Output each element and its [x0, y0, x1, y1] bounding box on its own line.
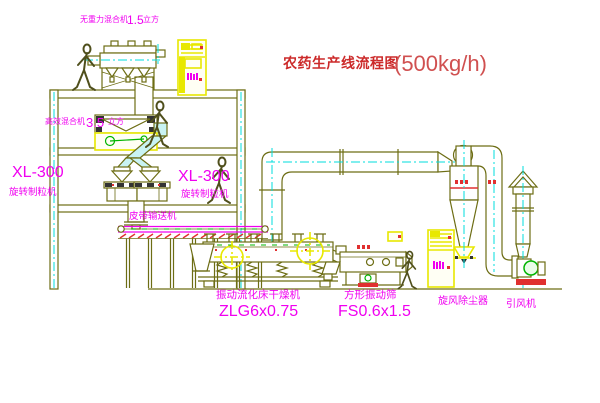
label-cyclone: 旋风除尘器 [438, 294, 488, 307]
label-gravity-free-mixer-unit: 立方 [143, 14, 159, 24]
dryer-foot [204, 281, 214, 287]
cabinet-text-mark [436, 262, 438, 269]
granulator-body-right [137, 188, 167, 201]
detail-dot [245, 249, 247, 251]
funnel-stem [126, 77, 130, 82]
fan-base [516, 279, 546, 285]
cabinet-text-mark [190, 73, 192, 80]
detail-dot [275, 249, 277, 251]
control-cabinet-top [178, 40, 206, 95]
flange-block [105, 183, 112, 187]
label-high-efficiency-mixer: 高效混合机 [45, 116, 85, 126]
flange-block [135, 183, 142, 187]
vent-cap [144, 41, 151, 46]
indicator-light [448, 236, 451, 239]
discharge-funnel [106, 68, 118, 77]
diagram-drawing: 农药生产线流程图 (500kg/h) 无重力混合机 1.5 立方 高效混合机 3… [0, 0, 600, 403]
dryer-foot [320, 281, 330, 287]
dimension-mark [488, 180, 491, 184]
label-high-efficiency-mixer-unit: 立方 [108, 116, 124, 126]
screen-discharge-spout [322, 262, 340, 274]
label-gravity-free-mixer: 无重力混合机 [80, 14, 128, 24]
granulator-body-left [107, 188, 137, 201]
label-screen-model: FS0.6x1.5 [338, 303, 411, 320]
diagram-title-capacity: (500kg/h) [394, 51, 487, 76]
detail-dot [112, 184, 114, 186]
label-screen-name: 方形振动筛 [344, 288, 397, 301]
cabinet-text-mark [439, 261, 441, 269]
dimension-mark [465, 180, 468, 184]
cabinet-display [430, 231, 440, 237]
dimension-mark [367, 245, 370, 249]
label-dryer-model: ZLG6x0.75 [219, 303, 298, 320]
cabinet-display [181, 43, 190, 50]
dimension-mark [493, 180, 496, 184]
label-granulator-middle-name: 旋转制粒机 [181, 188, 229, 200]
label-fan: 引风机 [506, 297, 536, 310]
dryer-feed-hopper [190, 244, 214, 271]
indicator-light [447, 266, 450, 269]
flange-block [147, 183, 154, 187]
high-efficiency-mixer [95, 115, 167, 168]
diagram-title: 农药生产线流程图 [282, 55, 399, 71]
vent-cap [128, 41, 135, 46]
cad-process-flow-diagram: 农药生产线流程图 (500kg/h) 无重力混合机 1.5 立方 高效混合机 3… [0, 0, 600, 403]
detail-dot [158, 184, 160, 186]
cabinet-text-mark [442, 262, 444, 269]
fan-impeller [524, 261, 538, 275]
cabinet-text-mark [187, 73, 189, 80]
label-high-efficiency-mixer-size: 3.5 [86, 115, 104, 130]
mixer-lid [104, 46, 156, 53]
indicator-light [199, 78, 202, 81]
mixer-side-port [156, 50, 165, 57]
cabinet-text-mark [433, 261, 435, 269]
granulator-funnel [112, 171, 132, 182]
motor-base [358, 283, 378, 287]
fan-motor [538, 262, 545, 275]
cabinet-panel [179, 57, 185, 93]
indicator-light [398, 235, 401, 238]
discharge-funnel [138, 68, 150, 77]
dimension-mark [460, 180, 463, 184]
control-cabinet-bottom [428, 230, 454, 287]
label-dryer-name: 振动流化床干燥机 [216, 288, 300, 301]
pulley-left [118, 226, 124, 232]
label-granulator-left-name: 旋转制粒机 [9, 186, 57, 198]
spout-end [324, 274, 332, 280]
blower-crosshair [290, 232, 330, 270]
funnel-stem [142, 77, 146, 82]
label-belt-conveyor: 皮带输送机 [129, 210, 177, 222]
indicator-light [200, 46, 203, 49]
flange-block [159, 183, 166, 187]
label-granulator-middle-model: XL-300 [178, 168, 230, 185]
label-granulator-left-model: XL-300 [12, 164, 64, 181]
detail-dot [215, 249, 217, 251]
flange-bolt [470, 256, 473, 259]
flange-bolt [455, 256, 458, 259]
worker-top-floor [73, 45, 95, 91]
vent-cap [111, 41, 118, 46]
dimension-mark [362, 245, 365, 249]
dimension-mark [357, 245, 360, 249]
cabinet-text-mark [193, 74, 195, 80]
flange-block [117, 183, 124, 187]
funnel-stem [110, 77, 114, 82]
granulator-funnel [140, 171, 160, 182]
riser-and-duct [262, 152, 438, 240]
induced-draft-fan [516, 259, 546, 285]
dryer-exhaust-duct [259, 148, 455, 243]
pulley-right [262, 226, 268, 232]
discharge-funnel [122, 68, 134, 77]
label-gravity-free-mixer-size: 1.5 [127, 13, 144, 27]
cabinet-text-mark [196, 73, 198, 80]
dimension-mark [455, 180, 458, 184]
gravity-free-mixer [84, 41, 165, 117]
